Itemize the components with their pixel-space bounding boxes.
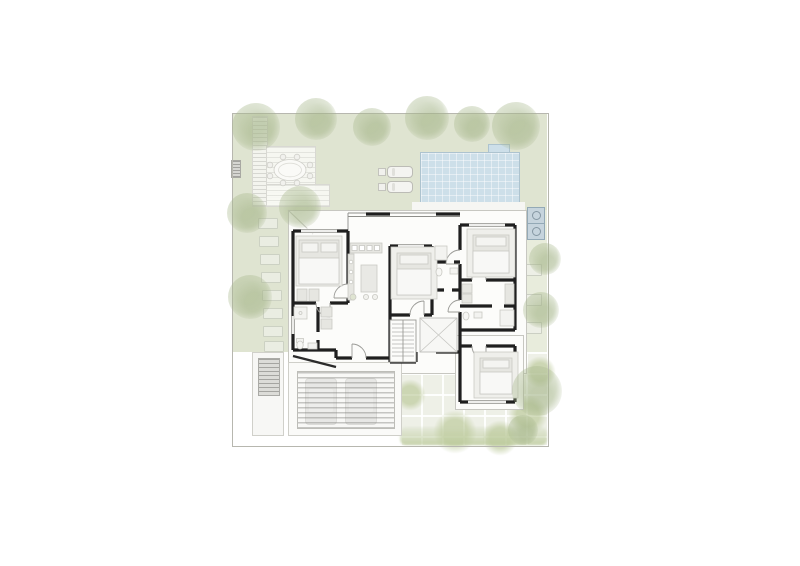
plant xyxy=(350,294,356,300)
tree-icon xyxy=(279,186,321,228)
dining-island xyxy=(361,265,377,292)
tree-icon xyxy=(227,193,267,233)
tree-icon xyxy=(405,96,449,140)
floorplan-linework xyxy=(0,0,800,566)
site-plan-canvas xyxy=(0,0,800,566)
tree-icon xyxy=(353,108,391,146)
court-fence xyxy=(293,356,336,367)
tree-icon xyxy=(295,98,337,140)
tree-icon xyxy=(508,415,538,445)
shower xyxy=(294,307,307,319)
toilet xyxy=(297,341,303,349)
tree-icon xyxy=(454,106,490,142)
glass-facade xyxy=(348,213,460,231)
tree-icon xyxy=(228,275,272,319)
tree-icon xyxy=(529,243,561,275)
tree-icon xyxy=(492,102,540,150)
tree-icon xyxy=(232,103,280,151)
void-skylight xyxy=(420,318,457,352)
tree-icon xyxy=(523,292,559,328)
tree-icon xyxy=(512,366,562,416)
sink xyxy=(308,343,317,349)
staircase xyxy=(390,320,416,362)
outdoor-dining-set xyxy=(267,154,313,186)
